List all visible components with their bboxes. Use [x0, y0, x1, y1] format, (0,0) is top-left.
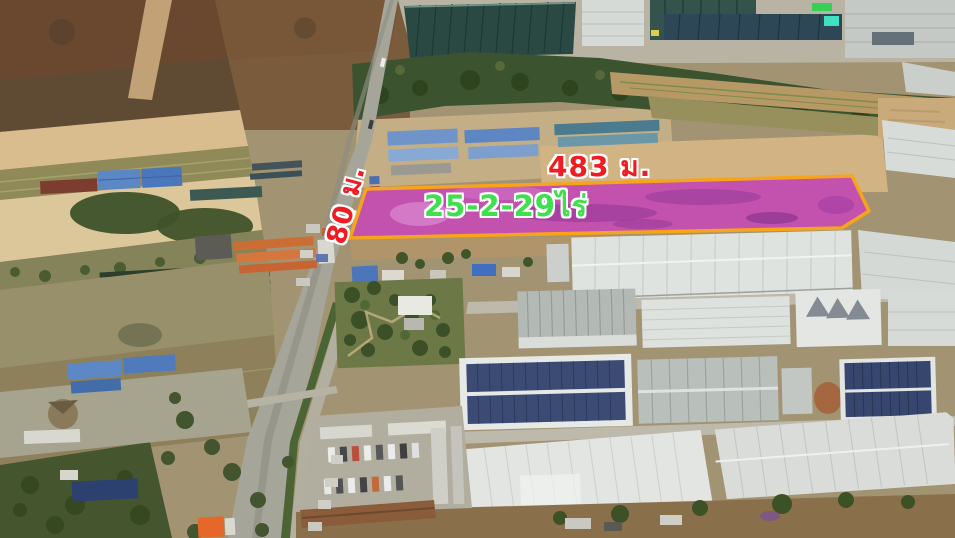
width-measurement-label: 483 ม.	[548, 153, 651, 181]
satellite-map: 483 ม. 80 ม. 25-2-29ไร่	[0, 0, 955, 538]
area-label: 25-2-29ไร่	[424, 192, 588, 221]
plot-annotation-layer	[0, 0, 955, 538]
